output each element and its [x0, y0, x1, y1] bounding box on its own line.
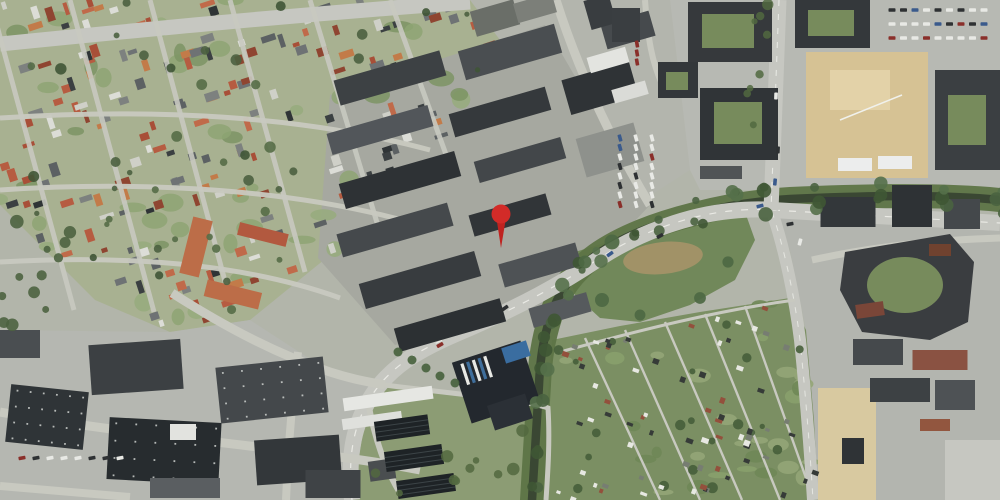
tree — [152, 186, 159, 193]
tree — [573, 359, 579, 365]
skylight — [284, 412, 286, 414]
building — [913, 350, 968, 370]
tree — [594, 254, 607, 267]
tree — [688, 417, 695, 424]
skylight — [174, 443, 176, 445]
garden-patch — [310, 209, 336, 221]
skylight — [133, 475, 135, 477]
industrial-building — [821, 197, 876, 227]
tree — [592, 247, 600, 255]
car — [935, 22, 942, 26]
skylight — [282, 396, 284, 398]
skylight — [225, 402, 227, 404]
skylight — [319, 377, 321, 379]
tree — [394, 348, 403, 357]
tree — [874, 176, 887, 189]
tree — [758, 207, 773, 222]
tree — [451, 379, 460, 388]
skylight — [51, 442, 53, 444]
garden-patch — [288, 236, 315, 244]
car — [889, 36, 896, 40]
skylight — [134, 441, 136, 443]
tree — [243, 175, 254, 186]
tree — [396, 490, 403, 497]
garden-patch — [450, 88, 468, 101]
garden-patch — [172, 309, 185, 326]
car — [946, 36, 953, 40]
tree — [114, 32, 120, 38]
tree — [212, 244, 220, 252]
tree — [154, 245, 162, 253]
tree — [554, 345, 564, 355]
skylight — [67, 411, 69, 413]
tree — [196, 79, 207, 90]
skylight — [26, 423, 28, 425]
skylight — [77, 444, 79, 446]
skylight — [28, 407, 30, 409]
warehouse-white — [170, 424, 196, 440]
garden-patch — [208, 124, 232, 139]
skylight — [66, 427, 68, 429]
tree — [28, 62, 36, 70]
tree — [548, 313, 561, 326]
tree — [629, 230, 639, 240]
skylight — [69, 395, 71, 397]
tree — [516, 424, 528, 436]
tree — [28, 171, 39, 182]
warehouse — [150, 478, 220, 498]
tree — [44, 246, 51, 253]
car — [935, 36, 942, 40]
tree — [28, 286, 40, 298]
car — [912, 36, 919, 40]
construction-tent — [878, 156, 912, 169]
tree — [289, 167, 297, 175]
map-canvas[interactable] — [0, 0, 1000, 500]
skylight — [15, 406, 17, 408]
car — [981, 22, 988, 26]
tree — [371, 468, 380, 477]
tree — [763, 31, 771, 39]
car — [889, 8, 896, 12]
car — [923, 36, 930, 40]
car — [776, 146, 780, 153]
tree — [692, 197, 699, 204]
tree — [812, 195, 825, 208]
tree — [709, 437, 716, 444]
car — [774, 92, 778, 99]
tree — [251, 80, 260, 89]
tree — [494, 470, 503, 479]
tree — [635, 310, 646, 321]
car — [981, 8, 988, 12]
skylight — [41, 408, 43, 410]
tree — [592, 429, 601, 438]
garden-patch — [32, 216, 47, 231]
tree — [756, 12, 764, 20]
tree — [694, 292, 706, 304]
tree — [675, 420, 685, 430]
building — [612, 8, 640, 42]
tree — [60, 237, 71, 248]
tree — [441, 450, 453, 462]
garden-patch — [209, 41, 231, 57]
tree — [37, 270, 47, 280]
garden-patch — [171, 222, 189, 237]
tree — [106, 216, 113, 223]
skylight — [155, 425, 157, 427]
garden-plot — [650, 351, 664, 358]
warehouse — [306, 470, 361, 498]
tree — [473, 457, 480, 464]
tree — [449, 475, 459, 485]
garden-patch — [37, 82, 59, 93]
tree — [264, 141, 275, 152]
car — [900, 36, 907, 40]
tree — [127, 170, 133, 176]
skylight — [244, 400, 246, 402]
map-pin-head — [492, 205, 511, 224]
warehouse — [5, 384, 89, 450]
building — [853, 339, 903, 365]
courtyard — [666, 72, 688, 90]
tree — [507, 463, 520, 476]
industrial-building — [892, 185, 932, 227]
skylight — [113, 474, 115, 476]
tree — [422, 8, 430, 16]
tree — [112, 186, 118, 192]
tree — [688, 465, 698, 475]
tree — [240, 150, 250, 160]
skylight — [317, 362, 319, 364]
skylight — [321, 392, 323, 394]
tree — [54, 253, 63, 262]
garden-patch — [142, 212, 168, 229]
gravel-lot — [945, 440, 1000, 500]
tree — [689, 368, 695, 374]
skylight — [262, 383, 264, 385]
tree — [408, 356, 417, 365]
tree — [206, 234, 213, 241]
tree — [64, 226, 76, 238]
garden-patch — [95, 68, 111, 88]
skylight — [25, 439, 27, 441]
car — [958, 22, 965, 26]
skylight — [114, 440, 116, 442]
construction-tent — [838, 158, 872, 171]
tree — [573, 484, 582, 493]
tree — [751, 18, 757, 24]
tree — [475, 67, 480, 72]
tree — [15, 273, 23, 281]
skylight — [82, 397, 84, 399]
skylight — [38, 440, 40, 442]
tree — [34, 211, 39, 216]
tree — [579, 256, 592, 269]
tree — [531, 447, 544, 460]
skylight — [243, 385, 245, 387]
tree — [231, 54, 242, 65]
car — [912, 22, 919, 26]
car — [773, 178, 777, 185]
tree — [354, 53, 364, 63]
skylight — [133, 458, 135, 460]
skylight — [322, 408, 324, 410]
tree — [875, 189, 888, 202]
skylight — [43, 392, 45, 394]
skylight — [215, 428, 217, 430]
tree — [536, 394, 549, 407]
garden-patch — [290, 105, 303, 116]
skylight — [193, 461, 195, 463]
skylight — [17, 390, 19, 392]
skylight — [213, 462, 215, 464]
building — [842, 438, 864, 464]
tree — [595, 293, 609, 307]
skylight — [80, 412, 82, 414]
tree — [654, 215, 662, 223]
tree — [722, 256, 733, 267]
car — [958, 36, 965, 40]
tree — [10, 215, 24, 229]
tree — [465, 464, 474, 473]
skylight — [223, 387, 225, 389]
skylight — [154, 442, 156, 444]
tree — [201, 46, 210, 55]
car — [969, 36, 976, 40]
tree — [540, 362, 554, 376]
tree — [796, 345, 804, 353]
tree — [227, 305, 236, 314]
tree — [90, 254, 97, 261]
skylight — [281, 381, 283, 383]
tree — [750, 121, 757, 128]
skylight — [30, 391, 32, 393]
tree — [585, 454, 592, 461]
tree — [357, 29, 368, 40]
skylight — [173, 460, 175, 462]
skylight — [153, 459, 155, 461]
building — [700, 166, 742, 179]
skylight — [54, 410, 56, 412]
tree — [722, 320, 731, 329]
car — [958, 8, 965, 12]
car — [946, 22, 953, 26]
tree — [538, 331, 550, 343]
tree — [155, 271, 163, 279]
tree — [223, 278, 231, 286]
skylight — [265, 414, 267, 416]
warehouse — [88, 339, 183, 395]
tree — [166, 63, 175, 72]
car — [889, 22, 896, 26]
roof-section — [929, 244, 951, 256]
tree — [726, 185, 739, 198]
building — [920, 419, 950, 431]
car — [900, 22, 907, 26]
tree — [277, 257, 283, 263]
garden-plot — [690, 452, 705, 461]
tree — [539, 343, 553, 357]
tree — [605, 235, 620, 250]
car — [969, 8, 976, 12]
building — [935, 380, 975, 410]
skylight — [64, 443, 66, 445]
skylight — [53, 426, 55, 428]
warehouse — [0, 330, 40, 358]
tree — [563, 290, 574, 301]
building — [870, 378, 930, 402]
tree — [464, 12, 469, 17]
tree — [757, 183, 772, 198]
courtyard — [808, 10, 854, 36]
tree — [111, 157, 121, 167]
tree — [755, 70, 763, 78]
tree — [422, 364, 431, 373]
tree — [743, 90, 751, 98]
garden-plot — [652, 447, 662, 458]
tree — [172, 236, 178, 242]
garden-plot — [559, 357, 572, 364]
skylight — [11, 437, 13, 439]
garden-plot — [755, 467, 777, 478]
courtyard — [702, 14, 754, 48]
skylight — [214, 445, 216, 447]
tree — [733, 419, 743, 429]
tree — [220, 158, 228, 166]
tree — [276, 1, 286, 11]
car — [946, 8, 953, 12]
skylight — [279, 366, 281, 368]
tree — [527, 482, 537, 492]
skylight — [246, 416, 248, 418]
skylight — [241, 370, 243, 372]
courtyard — [948, 95, 986, 145]
tree — [773, 445, 783, 455]
tree — [760, 424, 765, 429]
warehouse — [106, 417, 221, 485]
tree — [55, 63, 66, 74]
skylight — [222, 372, 224, 374]
garden-plot — [751, 437, 768, 444]
car — [935, 8, 942, 12]
tree — [276, 186, 283, 193]
skylight — [260, 368, 262, 370]
garden-patch — [67, 127, 84, 136]
garden-plot — [605, 352, 624, 365]
skylight — [300, 379, 302, 381]
car — [923, 22, 930, 26]
warehouse — [215, 357, 328, 424]
skylight — [115, 422, 117, 424]
skylight — [303, 410, 305, 412]
tree — [171, 131, 182, 142]
tree — [6, 318, 19, 331]
skylight — [114, 457, 116, 459]
garden-plot — [778, 461, 799, 474]
garden-patch — [404, 23, 422, 40]
tree — [139, 50, 149, 60]
skylight — [263, 398, 265, 400]
car — [969, 22, 976, 26]
car — [981, 36, 988, 40]
skylight — [301, 394, 303, 396]
tree — [436, 372, 445, 381]
car — [923, 8, 930, 12]
skylight — [56, 394, 58, 396]
tree — [261, 207, 270, 216]
tree — [810, 183, 819, 192]
tree — [742, 353, 751, 362]
skylight — [194, 444, 196, 446]
skylight — [298, 364, 300, 366]
tree — [939, 185, 949, 195]
skylight — [135, 423, 137, 425]
tree — [690, 217, 698, 225]
skylight — [79, 428, 81, 430]
garden-plot — [776, 367, 798, 378]
garden-plot — [737, 466, 757, 472]
tree — [698, 219, 708, 229]
car — [912, 8, 919, 12]
satellite-layer — [0, 0, 1000, 500]
skylight — [13, 422, 15, 424]
skylight — [39, 424, 41, 426]
car — [900, 8, 907, 12]
skylight — [227, 418, 229, 420]
tree — [42, 306, 49, 313]
